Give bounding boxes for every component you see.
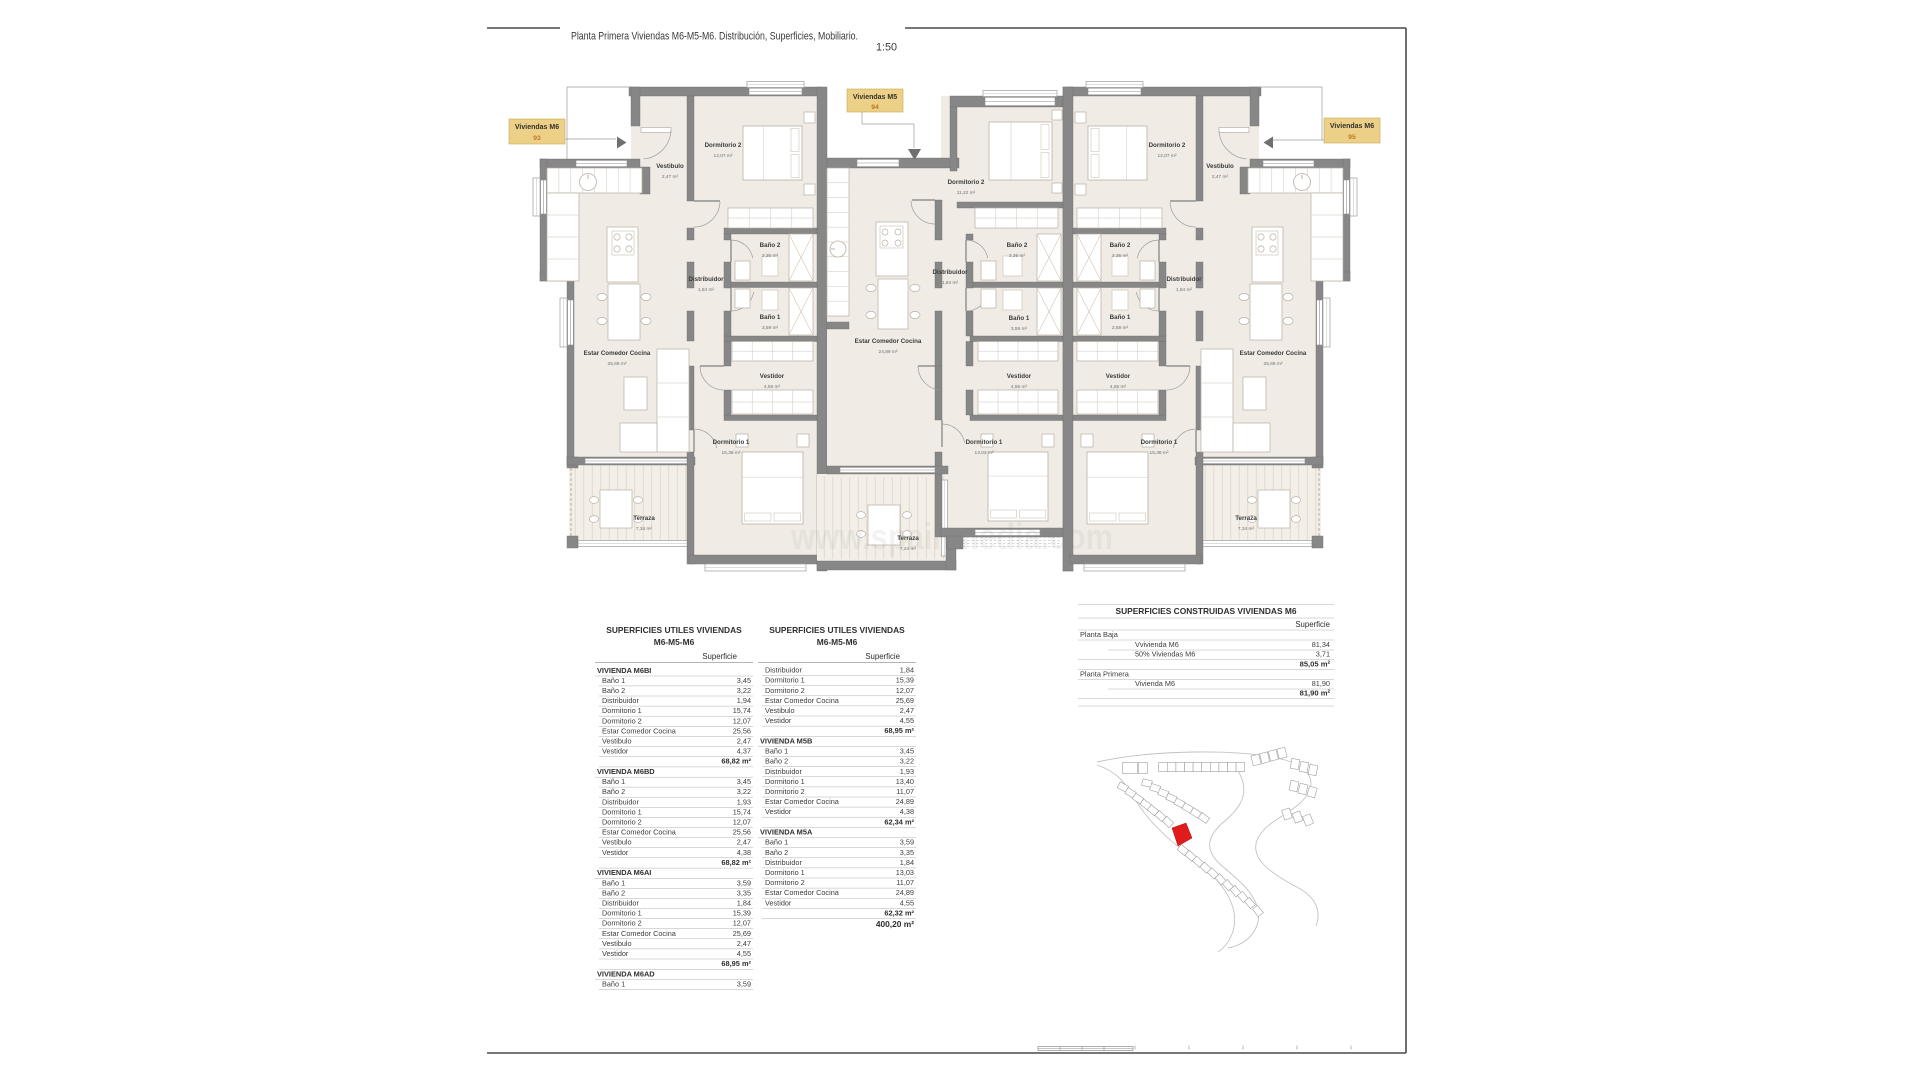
svg-text:4,55: 4,55 (737, 949, 751, 958)
svg-text:SUPERFICIES UTILES VIVIENDAS: SUPERFICIES UTILES VIVIENDAS (769, 625, 905, 635)
svg-text:3,22: 3,22 (737, 686, 751, 695)
svg-text:Baño 1: Baño 1 (602, 676, 625, 685)
svg-text:12,07: 12,07 (733, 716, 751, 725)
svg-text:15,38 m²: 15,38 m² (1150, 450, 1169, 456)
svg-text:68,95 m²: 68,95 m² (721, 959, 751, 968)
svg-text:Distribuidor: Distribuidor (602, 899, 639, 908)
svg-text:25,56: 25,56 (733, 726, 751, 735)
svg-text:Terraza: Terraza (1235, 515, 1257, 522)
svg-text:24,89: 24,89 (896, 797, 914, 806)
svg-text:Dormitorio 2: Dormitorio 2 (602, 919, 642, 928)
svg-text:1,93: 1,93 (737, 797, 751, 806)
svg-text:Dormitorio 1: Dormitorio 1 (765, 676, 805, 685)
svg-text:1,93: 1,93 (900, 767, 914, 776)
svg-text:15,39: 15,39 (733, 909, 751, 918)
svg-text:1:50: 1:50 (876, 42, 897, 54)
svg-text:3,59: 3,59 (900, 838, 914, 847)
svg-text:Baño 1: Baño 1 (602, 878, 625, 887)
svg-text:15,74: 15,74 (733, 706, 751, 715)
svg-text:3,45: 3,45 (737, 777, 751, 786)
svg-text:3,59 m²: 3,59 m² (1112, 325, 1129, 331)
svg-text:62,32 m²: 62,32 m² (884, 908, 914, 917)
svg-text:68,95 m²: 68,95 m² (884, 726, 914, 735)
svg-text:15,39: 15,39 (896, 676, 914, 685)
svg-text:Viviendas M5: Viviendas M5 (853, 94, 897, 101)
svg-text:Baño 1: Baño 1 (602, 980, 625, 989)
svg-text:2,47 m²: 2,47 m² (1212, 174, 1229, 180)
svg-text:2,47: 2,47 (737, 939, 751, 948)
svg-text:Dormitorio 1: Dormitorio 1 (602, 807, 642, 816)
svg-text:Dormitorio 1: Dormitorio 1 (602, 706, 642, 715)
svg-text:Vestibulo: Vestibulo (602, 838, 632, 847)
svg-text:25,69: 25,69 (733, 929, 751, 938)
svg-text:2,47: 2,47 (737, 737, 751, 746)
svg-text:3,59: 3,59 (737, 980, 751, 989)
svg-text:Dormitorio 1: Dormitorio 1 (602, 909, 642, 918)
svg-text:Distribuidor: Distribuidor (765, 858, 802, 867)
svg-text:Distribuidor: Distribuidor (688, 276, 724, 283)
svg-text:15,74: 15,74 (733, 807, 751, 816)
svg-text:13,03 m²: 13,03 m² (975, 450, 994, 456)
svg-text:Baño 2: Baño 2 (765, 848, 788, 857)
svg-text:3,59 m²: 3,59 m² (1011, 326, 1028, 332)
svg-text:25,69: 25,69 (896, 696, 914, 705)
svg-text:Estar Comedor Cocina: Estar Comedor Cocina (602, 929, 677, 938)
svg-text:3,45: 3,45 (900, 747, 914, 756)
svg-text:Dormitorio 2: Dormitorio 2 (765, 878, 805, 887)
svg-text:4,55 m²: 4,55 m² (1110, 384, 1127, 390)
svg-text:Dormitorio 1: Dormitorio 1 (966, 439, 1003, 446)
svg-text:3,22: 3,22 (737, 787, 751, 796)
svg-text:Vestidor: Vestidor (1106, 373, 1131, 380)
svg-text:www.spainmedia.com: www.spainmedia.com (790, 516, 1113, 557)
svg-text:3,71: 3,71 (1316, 650, 1330, 659)
svg-text:4,38: 4,38 (737, 848, 751, 857)
svg-text:25,56: 25,56 (733, 828, 751, 837)
svg-text:Vestidor: Vestidor (1007, 373, 1032, 380)
svg-text:3,59: 3,59 (737, 878, 751, 887)
svg-text:12,07: 12,07 (733, 919, 751, 928)
svg-text:Terraza: Terraza (633, 515, 655, 522)
svg-text:Estar Comedor Cocina: Estar Comedor Cocina (602, 726, 677, 735)
svg-text:Baño 2: Baño 2 (1007, 242, 1028, 249)
svg-text:Distribuidor: Distribuidor (765, 666, 802, 675)
svg-text:Baño 2: Baño 2 (602, 888, 625, 897)
svg-text:VIVIENDA M6AD: VIVIENDA M6AD (597, 969, 655, 978)
svg-text:7,34 m²: 7,34 m² (1238, 526, 1255, 532)
svg-text:Vestidor: Vestidor (765, 807, 792, 816)
svg-text:81,34: 81,34 (1312, 640, 1330, 649)
svg-text:VIVIENDA M5B: VIVIENDA M5B (760, 737, 812, 746)
svg-text:Superficie: Superficie (865, 652, 900, 661)
svg-text:Dormitorio 2: Dormitorio 2 (705, 142, 742, 149)
svg-text:1,84 m²: 1,84 m² (942, 280, 959, 286)
svg-text:Distribuidor: Distribuidor (1166, 276, 1202, 283)
svg-text:Baño 2: Baño 2 (602, 686, 625, 695)
svg-text:4,55: 4,55 (900, 716, 914, 725)
svg-text:4,38: 4,38 (900, 807, 914, 816)
svg-text:SUPERFICIES UTILES VIVIENDAS: SUPERFICIES UTILES VIVIENDAS (606, 625, 742, 635)
svg-text:93: 93 (533, 135, 541, 142)
svg-text:Distribuidor: Distribuidor (932, 269, 968, 276)
svg-text:25,69 m²: 25,69 m² (1264, 361, 1283, 367)
svg-text:81,90 m²: 81,90 m² (1300, 689, 1331, 698)
svg-text:Vestidor: Vestidor (765, 716, 792, 725)
svg-text:Dormitorio 2: Dormitorio 2 (602, 818, 642, 827)
svg-text:Baño 1: Baño 1 (765, 747, 788, 756)
svg-text:Superficie: Superficie (702, 652, 737, 661)
svg-text:Vestidor: Vestidor (602, 848, 629, 857)
svg-text:12,07: 12,07 (733, 818, 751, 827)
svg-text:Vestidor: Vestidor (602, 949, 629, 958)
svg-text:Estar Comedor Cocina: Estar Comedor Cocina (765, 888, 840, 897)
svg-text:SUPERFICIES CONSTRUIDAS VIVIEN: SUPERFICIES CONSTRUIDAS VIVIENDAS M6 (1115, 606, 1296, 616)
svg-text:3,22: 3,22 (900, 757, 914, 766)
svg-text:VIVIENDA M6BI: VIVIENDA M6BI (597, 666, 651, 675)
svg-text:1,84: 1,84 (737, 899, 751, 908)
svg-text:4,37: 4,37 (737, 747, 751, 756)
svg-text:62,34 m²: 62,34 m² (884, 817, 914, 826)
svg-text:3,35 m²: 3,35 m² (1112, 253, 1129, 259)
svg-text:Baño 1: Baño 1 (1009, 315, 1030, 322)
svg-text:Baño 1: Baño 1 (760, 314, 781, 321)
svg-text:Dormitorio 1: Dormitorio 1 (713, 439, 750, 446)
svg-text:Vestibulo: Vestibulo (602, 737, 632, 746)
svg-text:1,94: 1,94 (737, 696, 751, 705)
svg-text:24,89: 24,89 (896, 888, 914, 897)
svg-text:VIVIENDA M6BD: VIVIENDA M6BD (597, 767, 655, 776)
svg-text:400,20 m²: 400,20 m² (876, 919, 914, 929)
svg-text:3,35: 3,35 (900, 848, 914, 857)
svg-text:1,84 m²: 1,84 m² (698, 287, 715, 293)
svg-text:3,35 m²: 3,35 m² (762, 253, 779, 259)
svg-text:Dormitorio 2: Dormitorio 2 (765, 686, 805, 695)
svg-text:Baño 1: Baño 1 (765, 838, 788, 847)
svg-text:68,82 m²: 68,82 m² (721, 858, 751, 867)
svg-text:Planta Baja: Planta Baja (1080, 630, 1119, 639)
svg-text:Vestibulo: Vestibulo (602, 939, 632, 948)
svg-text:4,55 m²: 4,55 m² (764, 384, 781, 390)
svg-text:Viviendas M6: Viviendas M6 (515, 124, 559, 131)
svg-text:Baño 1: Baño 1 (602, 777, 625, 786)
svg-text:Viviendas M6: Viviendas M6 (1330, 123, 1374, 130)
svg-text:Vestidor: Vestidor (602, 747, 629, 756)
svg-text:Dormitorio 1: Dormitorio 1 (1141, 439, 1178, 446)
svg-text:Estar Comedor Cocina: Estar Comedor Cocina (855, 338, 922, 345)
svg-text:Dormitorio 1: Dormitorio 1 (765, 868, 805, 877)
svg-text:Distribuidor: Distribuidor (602, 797, 639, 806)
svg-text:Dormitorio 2: Dormitorio 2 (948, 179, 985, 186)
svg-text:94: 94 (871, 104, 879, 111)
svg-text:Baño 2: Baño 2 (1110, 242, 1131, 249)
svg-text:Dormitorio 2: Dormitorio 2 (602, 716, 642, 725)
svg-text:81,90: 81,90 (1312, 679, 1330, 688)
svg-text:Vestidor: Vestidor (765, 898, 792, 907)
svg-text:15,38 m²: 15,38 m² (722, 450, 741, 456)
svg-text:2,47: 2,47 (900, 706, 914, 715)
svg-text:Dormitorio 2: Dormitorio 2 (1149, 142, 1186, 149)
svg-text:Baño 2: Baño 2 (602, 787, 625, 796)
svg-text:7,34 m²: 7,34 m² (636, 526, 653, 532)
svg-text:85,05 m²: 85,05 m² (1300, 660, 1331, 669)
svg-text:2,47: 2,47 (737, 838, 751, 847)
svg-text:95: 95 (1348, 134, 1356, 141)
svg-text:Vestibulo: Vestibulo (1206, 163, 1234, 170)
svg-text:25,69 m²: 25,69 m² (608, 361, 627, 367)
svg-text:Estar Comedor Cocina: Estar Comedor Cocina (584, 350, 651, 357)
svg-text:Dormitorio 2: Dormitorio 2 (765, 787, 805, 796)
svg-text:Planta Primera Viviendas M6-M5: Planta Primera Viviendas M6-M5-M6. Distr… (571, 31, 858, 43)
svg-text:4,55 m²: 4,55 m² (1011, 384, 1028, 390)
svg-text:VIVIENDA M6AI: VIVIENDA M6AI (597, 868, 651, 877)
svg-text:3,45: 3,45 (737, 676, 751, 685)
svg-text:11,07: 11,07 (896, 878, 914, 887)
svg-text:Estar Comedor Cocina: Estar Comedor Cocina (1240, 350, 1307, 357)
svg-text:Baño 1: Baño 1 (1110, 314, 1131, 321)
svg-text:M6-M5-M6: M6-M5-M6 (817, 637, 858, 647)
svg-text:Distribuidor: Distribuidor (602, 696, 639, 705)
svg-text:VIVIENDA M5A: VIVIENDA M5A (760, 828, 813, 837)
svg-text:1,84: 1,84 (900, 858, 914, 867)
svg-text:Vivienda M6: Vivienda M6 (1135, 679, 1175, 688)
svg-text:Estar Comedor Cocina: Estar Comedor Cocina (602, 828, 677, 837)
svg-text:50% Viviendas M6: 50% Viviendas M6 (1135, 650, 1195, 659)
svg-text:Estar Comedor Cocina: Estar Comedor Cocina (765, 797, 840, 806)
svg-text:3,35: 3,35 (737, 888, 751, 897)
svg-text:68,82 m²: 68,82 m² (721, 757, 751, 766)
svg-text:12,07 m²: 12,07 m² (714, 153, 733, 159)
svg-text:3,59 m²: 3,59 m² (762, 325, 779, 331)
svg-text:Vestidor: Vestidor (760, 373, 785, 380)
svg-text:11,07: 11,07 (896, 787, 914, 796)
svg-text:Vestibulo: Vestibulo (656, 163, 684, 170)
svg-text:3,35 m²: 3,35 m² (1009, 253, 1026, 259)
svg-text:24,89 m²: 24,89 m² (879, 349, 898, 355)
svg-text:2,47 m²: 2,47 m² (662, 174, 679, 180)
svg-text:Superficie: Superficie (1295, 620, 1330, 629)
svg-text:Dormitorio 1: Dormitorio 1 (765, 777, 805, 786)
svg-text:Planta Primera: Planta Primera (1080, 670, 1130, 679)
svg-text:1,84 m²: 1,84 m² (1176, 287, 1193, 293)
svg-text:Vvivienda M6: Vvivienda M6 (1135, 640, 1179, 649)
svg-text:Distribuidor: Distribuidor (765, 767, 802, 776)
svg-text:4,55: 4,55 (900, 898, 914, 907)
svg-text:13,03: 13,03 (896, 868, 914, 877)
svg-text:Baño 2: Baño 2 (765, 757, 788, 766)
svg-text:12,07: 12,07 (896, 686, 914, 695)
svg-text:M6-M5-M6: M6-M5-M6 (654, 637, 695, 647)
svg-text:Baño 2: Baño 2 (760, 242, 781, 249)
svg-text:11,22 m²: 11,22 m² (957, 190, 976, 196)
svg-text:13,40: 13,40 (896, 777, 914, 786)
svg-text:12,07 m²: 12,07 m² (1158, 153, 1177, 159)
svg-text:1,84: 1,84 (900, 666, 914, 675)
svg-text:Vestibulo: Vestibulo (765, 706, 795, 715)
svg-text:Estar Comedor Cocina: Estar Comedor Cocina (765, 696, 840, 705)
